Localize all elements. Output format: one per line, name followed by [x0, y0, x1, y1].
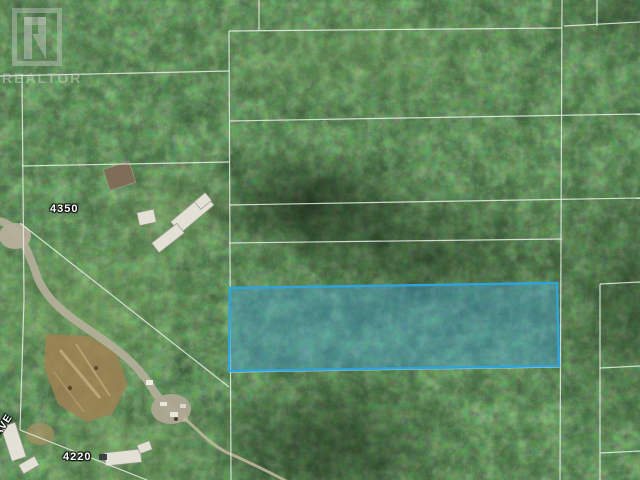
- parcel-boundary-line: [600, 366, 640, 368]
- realtor-logo-box: [12, 8, 62, 66]
- parcel-boundary-line: [229, 198, 640, 205]
- parcel-boundary-line: [22, 74, 24, 300]
- parcel-boundary-line: [22, 162, 229, 166]
- realtor-watermark: REALTOR: [2, 6, 98, 92]
- parcel-boundary-line: [20, 223, 229, 387]
- parcel-boundary-line: [229, 28, 562, 31]
- highlighted-parcel: [229, 283, 559, 371]
- parcel-boundary-line: [560, 0, 562, 480]
- parcel-boundary-line: [564, 22, 640, 26]
- parcel-boundary-line: [600, 282, 640, 284]
- parcel-boundary-line: [229, 114, 640, 121]
- parcel-label-4220: 4220: [63, 451, 91, 463]
- realtor-wordmark: REALTOR: [2, 70, 98, 86]
- parcel-boundary-line: [229, 239, 562, 243]
- realtor-r-icon: [17, 13, 57, 61]
- parcel-boundary-line: [600, 451, 640, 453]
- aerial-map: 4350 4220 NS AVE REALTOR: [0, 0, 640, 480]
- parcel-boundary-line: [20, 300, 24, 430]
- parcel-boundary-line: [229, 31, 231, 480]
- parcel-label-4350: 4350: [50, 203, 78, 215]
